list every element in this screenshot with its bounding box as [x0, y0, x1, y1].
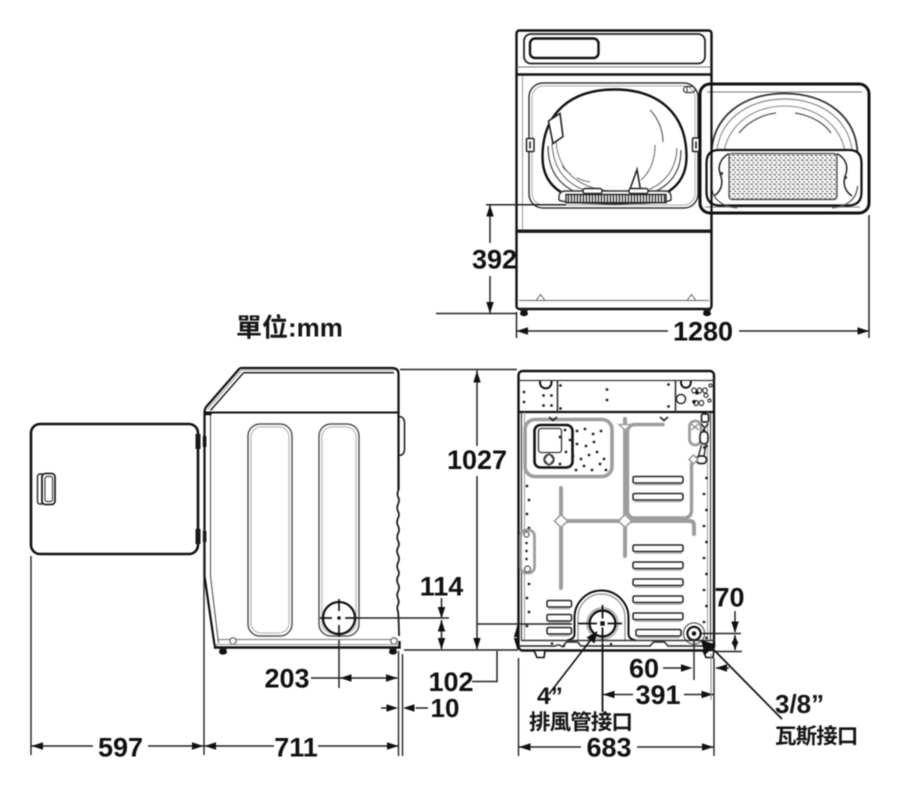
svg-text::mm: :mm [288, 313, 343, 343]
svg-text:4”: 4” [537, 683, 563, 710]
svg-text:1027: 1027 [447, 445, 507, 475]
svg-text:10: 10 [431, 693, 460, 723]
svg-text:597: 597 [98, 733, 143, 763]
svg-text:70: 70 [714, 583, 744, 613]
svg-text:203: 203 [264, 664, 309, 694]
svg-text:683: 683 [586, 733, 631, 763]
svg-text:391: 391 [635, 680, 680, 710]
svg-text:711: 711 [274, 733, 318, 763]
svg-text:392: 392 [472, 245, 517, 275]
svg-text:3/8”: 3/8” [775, 689, 824, 719]
svg-text:1280: 1280 [673, 317, 733, 347]
svg-text:114: 114 [420, 572, 464, 602]
svg-text:60: 60 [629, 654, 659, 684]
